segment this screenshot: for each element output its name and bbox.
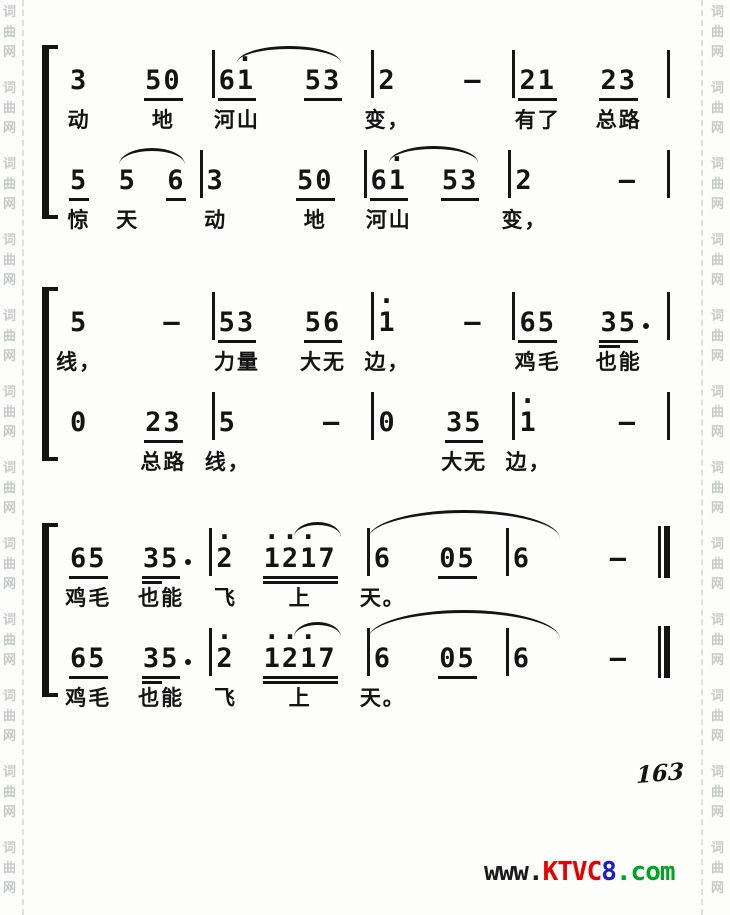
watermark-char: 网 [3, 803, 16, 823]
note: ·2 [216, 624, 234, 674]
note-cell: 21有了 [519, 46, 556, 132]
lyric [442, 196, 479, 232]
watermark-char: 词 [3, 155, 16, 175]
note-digits: 21 [519, 66, 556, 96]
note: 5 [70, 288, 88, 338]
system-bracket [42, 526, 49, 694]
note-cell: 5线， [70, 288, 88, 374]
watermark-char: 曲 [3, 251, 16, 271]
note-cell: ·2飞 [216, 524, 234, 610]
system: 3动50地 ·61河山532变，–21有了23总路5惊5天63动50地 ·61河… [42, 46, 670, 232]
note-digits: 6 [374, 644, 392, 674]
watermark-char: 网 [3, 271, 16, 291]
watermark-char: 网 [3, 575, 16, 595]
lyric-text: 飞 [214, 582, 237, 612]
system: 65鸡毛35也能·2飞··· 1217上6天。056–65鸡毛35也能·2飞··… [42, 524, 670, 710]
note-digits: 3 [70, 66, 88, 96]
lyric-text: 边， [364, 346, 410, 376]
lyric: 也能 [143, 574, 180, 610]
note-digits: – [464, 66, 482, 96]
note-digits: 53 [442, 166, 479, 196]
lyric: 边， [519, 438, 537, 474]
measure: 3动50地 [66, 46, 212, 132]
note: – [619, 146, 637, 196]
watermark-group: 词曲网 [711, 383, 724, 443]
note-digits: 23 [600, 66, 637, 96]
note-cell: – [610, 624, 628, 710]
note: – [610, 524, 628, 574]
measure: ·1边，– [515, 388, 667, 474]
right-dashed-divider [701, 0, 703, 915]
lyric-text: 动 [204, 204, 227, 234]
watermark-char: 词 [3, 687, 16, 707]
lyric [619, 438, 637, 474]
note-cell: – [163, 288, 181, 374]
system: 5线，–53力量56大无·1边，–65鸡毛35也能023总路5线，–035大无·… [42, 288, 670, 474]
watermark-char: 曲 [3, 99, 16, 119]
measure: 21有了23总路 [515, 46, 667, 132]
watermark-char: 词 [3, 763, 16, 783]
watermark-char: 曲 [711, 783, 724, 803]
note-digits: 35 [600, 308, 637, 338]
watermark-group: 词曲网 [711, 231, 724, 291]
lyric: 鸡毛 [70, 674, 107, 710]
note-cell: 65鸡毛 [70, 624, 107, 710]
watermark-char: 网 [3, 499, 16, 519]
note: 53 [219, 288, 256, 338]
lyric: 飞 [216, 674, 234, 710]
watermark-char: 网 [711, 499, 724, 519]
lyric [70, 438, 88, 474]
note: 3 [207, 146, 225, 196]
measure: 5线，– [215, 388, 372, 474]
note-digits: 61 [219, 66, 256, 96]
watermark-right-column: 词曲网词曲网词曲网词曲网词曲网词曲网词曲网词曲网词曲网词曲网词曲网词曲网 [711, 3, 724, 915]
note: 0 [70, 388, 88, 438]
note-digits: 65 [70, 544, 107, 574]
watermark-char: 词 [3, 611, 16, 631]
slur-arc [368, 510, 560, 539]
note-cell: 35也能 [143, 624, 180, 710]
measures-row: 65鸡毛35也能·2飞··· 1217上6天。056– [66, 524, 670, 610]
note: – [464, 46, 482, 96]
barline [667, 292, 670, 340]
watermark-char: 词 [3, 3, 16, 23]
note-digits: – [163, 308, 181, 338]
watermark-group: 词曲网 [711, 687, 724, 747]
note: 21 [519, 46, 556, 96]
watermark-group: 词曲网 [711, 155, 724, 215]
lyric-text: 河山 [366, 204, 412, 234]
watermark-char: 网 [711, 651, 724, 671]
measure: 035大无 [374, 388, 512, 474]
watermark-group: 词曲网 [3, 687, 16, 747]
sheet-music-page: 词曲网词曲网词曲网词曲网词曲网词曲网词曲网词曲网词曲网词曲网词曲网词曲网 词曲网… [0, 0, 730, 915]
augmentation-dot [185, 559, 191, 565]
lyric: 也能 [143, 674, 180, 710]
note: ·2 [216, 524, 234, 574]
watermark-char: 曲 [711, 859, 724, 879]
lyric-text: 也能 [138, 582, 184, 612]
final-barline [658, 526, 670, 578]
watermark-group: 词曲网 [3, 307, 16, 367]
watermark-group: 词曲网 [3, 459, 16, 519]
note: ··· 1217 [264, 524, 337, 574]
note: 50 [145, 46, 182, 96]
watermark-char: 词 [711, 611, 724, 631]
watermark-char: 曲 [711, 631, 724, 651]
barline-thick [664, 626, 670, 678]
note-cell: ··· 1217上 [264, 624, 337, 710]
watermark-group: 词曲网 [711, 459, 724, 519]
note-digits: 2 [216, 544, 234, 574]
note-cell: 3动 [70, 46, 88, 132]
note-cell: – [619, 388, 637, 474]
lyric: 天 [119, 196, 137, 232]
measure: 65鸡毛35也能 [515, 288, 667, 374]
watermark-char: 词 [711, 763, 724, 783]
lyric: 大无 [446, 438, 483, 474]
barline-thin [658, 526, 661, 578]
lyric-text: 天。 [360, 682, 406, 712]
lyric: 也能 [600, 338, 637, 374]
note: 35 [143, 624, 180, 674]
note-digits: 0 [378, 408, 396, 438]
measure: ·1边，– [374, 288, 512, 374]
watermark-char: 曲 [3, 23, 16, 43]
watermark-char: 网 [711, 803, 724, 823]
watermark-group: 词曲网 [711, 3, 724, 63]
music-line: 5线，–53力量56大无·1边，–65鸡毛35也能 [66, 288, 670, 374]
barline [667, 150, 670, 198]
watermark-char: 词 [711, 79, 724, 99]
watermark-char: 网 [3, 347, 16, 367]
lyric-text: 地 [152, 104, 175, 134]
lyric: 飞 [216, 574, 234, 610]
note-digits: 5 [119, 166, 137, 196]
note-cell: 50地 [297, 146, 334, 232]
lyric-text: 上 [289, 682, 312, 712]
lyric: 有了 [519, 96, 556, 132]
note-cell: ·2飞 [216, 624, 234, 710]
lyric: 大无 [305, 338, 342, 374]
measure: ·2飞··· 1217上 [212, 524, 366, 610]
watermark-char: 词 [3, 307, 16, 327]
watermark-char: 曲 [3, 783, 16, 803]
watermark-group: 词曲网 [711, 535, 724, 595]
note-digits: 6 [167, 166, 185, 196]
watermark-char: 网 [3, 651, 16, 671]
lyric: 上 [264, 674, 337, 710]
website-url: www.KTVC8.com [484, 857, 675, 887]
lyric-text: 地 [304, 204, 327, 234]
note: 2 [378, 46, 396, 96]
lyric-text: 天。 [360, 582, 406, 612]
final-barline [658, 626, 670, 678]
note: – [619, 388, 637, 438]
watermark-char: 曲 [3, 175, 16, 195]
note-digits: 1 [378, 308, 396, 338]
watermark-char: 词 [711, 3, 724, 23]
measure: 2变，– [374, 46, 512, 132]
lyric-text: 河山 [214, 104, 260, 134]
note-cell: 0 [378, 388, 396, 474]
lyric-text: 力量 [214, 346, 260, 376]
note-cell: 50地 [145, 46, 182, 132]
lyric-text: 变， [364, 104, 410, 134]
lyric-text: 飞 [214, 682, 237, 712]
watermark-group: 词曲网 [711, 307, 724, 367]
watermark-group: 词曲网 [3, 155, 16, 215]
lyric [513, 674, 531, 710]
note-digits: 5 [219, 408, 237, 438]
note-digits: 23 [145, 408, 182, 438]
note-digits: 35 [143, 544, 180, 574]
watermark-char: 网 [711, 195, 724, 215]
note-digits: – [610, 644, 628, 674]
watermark-char: 网 [3, 43, 16, 63]
note-digits: 53 [219, 308, 256, 338]
lyric: 线， [70, 338, 88, 374]
note-digits: 1217 [264, 544, 337, 574]
measures-row: 3动50地 ·61河山532变，–21有了23总路 [66, 46, 670, 132]
lyric-text: 天 [116, 204, 139, 234]
note-digits: 3 [207, 166, 225, 196]
watermark-char: 曲 [3, 555, 16, 575]
lyric-text: 总路 [140, 446, 186, 476]
note-cell: ·1边， [519, 388, 537, 474]
watermark-group: 词曲网 [711, 611, 724, 671]
watermark-char: 网 [711, 727, 724, 747]
note-digits: – [619, 408, 637, 438]
note-digits: 6 [513, 644, 531, 674]
note-cell: 35大无 [446, 388, 483, 474]
watermark-char: 曲 [711, 175, 724, 195]
lyric-text: 总路 [596, 104, 642, 134]
barline [667, 392, 670, 440]
watermark-char: 网 [711, 43, 724, 63]
note-cell: 2变， [515, 146, 533, 232]
note-cell: 3动 [207, 146, 225, 232]
watermark-char: 词 [3, 79, 16, 99]
watermark-char: 词 [3, 839, 16, 859]
lyric: 地 [297, 196, 334, 232]
lyric-text: 大无 [300, 346, 346, 376]
lyric: 线， [219, 438, 237, 474]
lyric: 河山 [219, 96, 256, 132]
note-digits: – [464, 308, 482, 338]
lyric: 惊 [70, 196, 88, 232]
note-digits: 65 [70, 644, 107, 674]
watermark-char: 词 [711, 687, 724, 707]
note-cell: ··· 1217上 [264, 524, 337, 610]
lyric: 鸡毛 [519, 338, 556, 374]
note: 5 [70, 146, 88, 196]
note: 5 [219, 388, 237, 438]
music-line: 5惊5天63动50地 ·61河山532变，– [66, 146, 670, 232]
note-cell: 35也能 [600, 288, 637, 374]
note: 65 [70, 624, 107, 674]
system-bracket [42, 48, 49, 216]
watermark-char: 曲 [3, 403, 16, 423]
lyric-text: 惊 [68, 204, 91, 234]
watermark-char: 曲 [3, 859, 16, 879]
lyric-text: 动 [68, 104, 91, 134]
watermark-char: 词 [3, 459, 16, 479]
lyric [378, 438, 396, 474]
watermark-char: 网 [3, 727, 16, 747]
note-digits: 05 [439, 544, 476, 574]
watermark-char: 曲 [3, 707, 16, 727]
note-cell: ·1边， [378, 288, 396, 374]
barline-thick [664, 526, 670, 578]
note-digits: 5 [70, 166, 88, 196]
note-digits: 61 [371, 166, 408, 196]
watermark-char: 曲 [711, 403, 724, 423]
lyric-text: 线， [205, 446, 251, 476]
watermark-char: 词 [711, 459, 724, 479]
note-cell: – [464, 288, 482, 374]
note: ·1 [519, 388, 537, 438]
left-dashed-divider [22, 0, 24, 915]
watermark-char: 词 [3, 535, 16, 555]
note-digits: 0 [70, 408, 88, 438]
note-digits: 35 [143, 644, 180, 674]
note: 23 [145, 388, 182, 438]
watermark-group: 词曲网 [3, 231, 16, 291]
lyric-text: 线， [56, 346, 102, 376]
note-cell: 2变， [378, 46, 396, 132]
note-digits: 2 [515, 166, 533, 196]
note-digits: 50 [145, 66, 182, 96]
watermark-char: 网 [3, 195, 16, 215]
lyric [167, 196, 185, 232]
lyric [464, 338, 482, 374]
note: 3 [70, 46, 88, 96]
note-cell: – [619, 146, 637, 232]
watermark-char: 词 [711, 307, 724, 327]
watermark-char: 曲 [3, 631, 16, 651]
note-digits: 05 [439, 644, 476, 674]
note-digits: – [610, 544, 628, 574]
watermark-char: 词 [711, 839, 724, 859]
url-segment: .com [616, 857, 675, 887]
note: 35 [143, 524, 180, 574]
measure: ·2飞··· 1217上 [212, 624, 366, 710]
lyric [619, 196, 637, 232]
measures-row: 5惊5天63动50地 ·61河山532变，– [66, 146, 670, 232]
note: 56 [305, 288, 342, 338]
note-cell: 23总路 [145, 388, 182, 474]
watermark-group: 词曲网 [3, 383, 16, 443]
note-cell: – [464, 46, 482, 132]
lyric [464, 96, 482, 132]
note: 35 [600, 288, 637, 338]
note-cell: – [323, 388, 341, 474]
slur-arc [368, 610, 560, 639]
note: – [610, 624, 628, 674]
watermark-char: 曲 [711, 99, 724, 119]
watermark-char: 网 [711, 879, 724, 899]
lyric: 动 [70, 96, 88, 132]
measure: 65鸡毛35也能 [66, 524, 209, 610]
music-line: 65鸡毛35也能·2飞··· 1217上6天。056– [66, 524, 670, 610]
lyric-text: 也能 [138, 682, 184, 712]
note: 65 [519, 288, 556, 338]
barline [667, 50, 670, 98]
watermark-char: 网 [711, 423, 724, 443]
measures-row: 65鸡毛35也能·2飞··· 1217上6天。056– [66, 624, 670, 710]
note-cell: 53力量 [219, 288, 256, 374]
note: ··· 1217 [264, 624, 337, 674]
note-cell: 65鸡毛 [519, 288, 556, 374]
lyric: 上 [264, 574, 337, 610]
lyric-text: 也能 [596, 346, 642, 376]
watermark-char: 网 [3, 423, 16, 443]
note: 0 [378, 388, 396, 438]
watermark-char: 曲 [711, 707, 724, 727]
lyric [513, 574, 531, 610]
watermark-char: 曲 [711, 479, 724, 499]
watermark-group: 词曲网 [3, 763, 16, 823]
lyric: 天。 [374, 674, 392, 710]
note: – [163, 288, 181, 338]
note: 23 [600, 46, 637, 96]
note-cell: 35也能 [143, 524, 180, 610]
url-segment: www. [484, 857, 543, 887]
watermark-char: 词 [711, 383, 724, 403]
note-digits: 6 [513, 544, 531, 574]
note: 35 [446, 388, 483, 438]
lyric [305, 96, 342, 132]
measures-row: 5线，–53力量56大无·1边，–65鸡毛35也能 [66, 288, 670, 374]
note-digits: – [323, 408, 341, 438]
system-bracket [42, 290, 49, 458]
lyric: 边， [378, 338, 396, 374]
note-cell: 56大无 [305, 288, 342, 374]
watermark-group: 词曲网 [3, 839, 16, 899]
note: 50 [297, 146, 334, 196]
page-number: 163 [636, 758, 684, 789]
watermark-group: 词曲网 [3, 611, 16, 671]
lyric [439, 674, 476, 710]
lyric: 河山 [371, 196, 408, 232]
watermark-char: 词 [3, 231, 16, 251]
lyric [439, 574, 476, 610]
lyric-text: 边， [506, 446, 552, 476]
measures-row: 023总路5线，–035大无·1边，– [66, 388, 670, 474]
lyric: 变， [515, 196, 533, 232]
note-digits: 5 [70, 308, 88, 338]
note-digits: – [619, 166, 637, 196]
lyric: 动 [207, 196, 225, 232]
lyric: 天。 [374, 574, 392, 610]
note: 65 [70, 524, 107, 574]
music-line: 023总路5线，–035大无·1边，– [66, 388, 670, 474]
watermark-char: 曲 [711, 327, 724, 347]
measure: 5线，– [66, 288, 212, 374]
watermark-char: 曲 [711, 251, 724, 271]
note-digits: 6 [374, 544, 392, 574]
lyric-text: 变， [501, 204, 547, 234]
watermark-char: 曲 [711, 23, 724, 43]
note-cell: 23总路 [600, 46, 637, 132]
measure: 023总路 [66, 388, 212, 474]
lyric: 总路 [600, 96, 637, 132]
note: – [323, 388, 341, 438]
music-line: 65鸡毛35也能·2飞··· 1217上6天。056– [66, 624, 670, 710]
lyric-text: 鸡毛 [65, 682, 111, 712]
